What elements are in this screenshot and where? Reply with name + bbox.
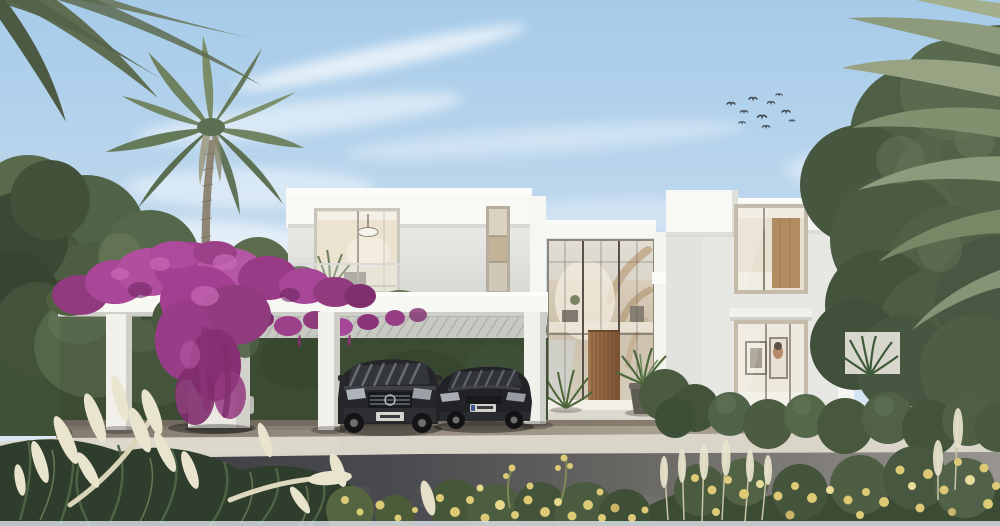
pendant-lamp (358, 228, 378, 237)
narrow-accent-window (486, 206, 510, 294)
villa-rendering-image: Photorealistic rendering of a modern two… (0, 0, 1000, 526)
suv-headlight (346, 388, 366, 400)
suv (334, 359, 442, 436)
suv-headlight (412, 388, 432, 400)
villa-exterior-scene: Photorealistic rendering of a modern two… (0, 0, 1000, 526)
right-wing-upper-window (734, 204, 808, 294)
wood-pivot-door (588, 330, 620, 412)
sedan (434, 367, 534, 433)
image-bottom-edge (0, 521, 1000, 526)
